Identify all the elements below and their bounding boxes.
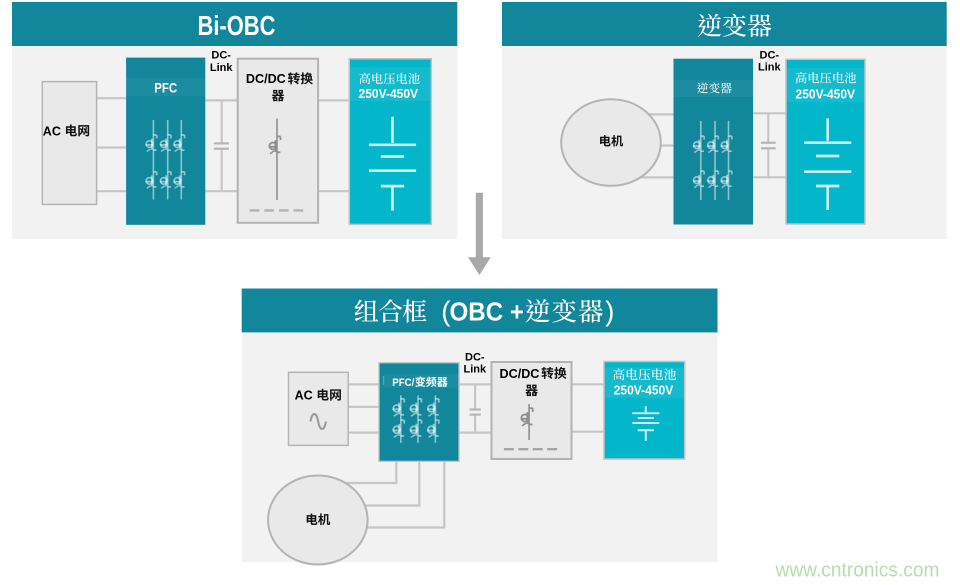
svg-text:250V-450V: 250V-450V bbox=[614, 382, 674, 397]
svg-text:Link: Link bbox=[463, 363, 486, 375]
svg-text:DC-: DC- bbox=[760, 50, 780, 62]
svg-text:AC: AC bbox=[295, 389, 313, 403]
svg-text:250V-450V: 250V-450V bbox=[796, 86, 856, 101]
svg-text:PFC/: PFC/ bbox=[392, 377, 415, 389]
svg-text:Link: Link bbox=[758, 62, 781, 74]
svg-text:Bi-OBC: Bi-OBC bbox=[198, 10, 276, 41]
svg-text:DC-: DC- bbox=[211, 49, 231, 61]
svg-text:AC: AC bbox=[43, 124, 61, 138]
svg-text:www.cntronics.com: www.cntronics.com bbox=[775, 558, 940, 581]
svg-text:250V-450V: 250V-450V bbox=[359, 86, 419, 101]
svg-text:PFC: PFC bbox=[154, 80, 177, 95]
svg-text:Link: Link bbox=[210, 62, 233, 74]
svg-text:DC/DC: DC/DC bbox=[246, 72, 286, 86]
svg-text:DC/DC: DC/DC bbox=[500, 367, 540, 381]
svg-text:OBC +: OBC + bbox=[450, 297, 525, 327]
svg-text:DC-: DC- bbox=[465, 351, 485, 363]
svg-text:): ) bbox=[605, 296, 614, 327]
